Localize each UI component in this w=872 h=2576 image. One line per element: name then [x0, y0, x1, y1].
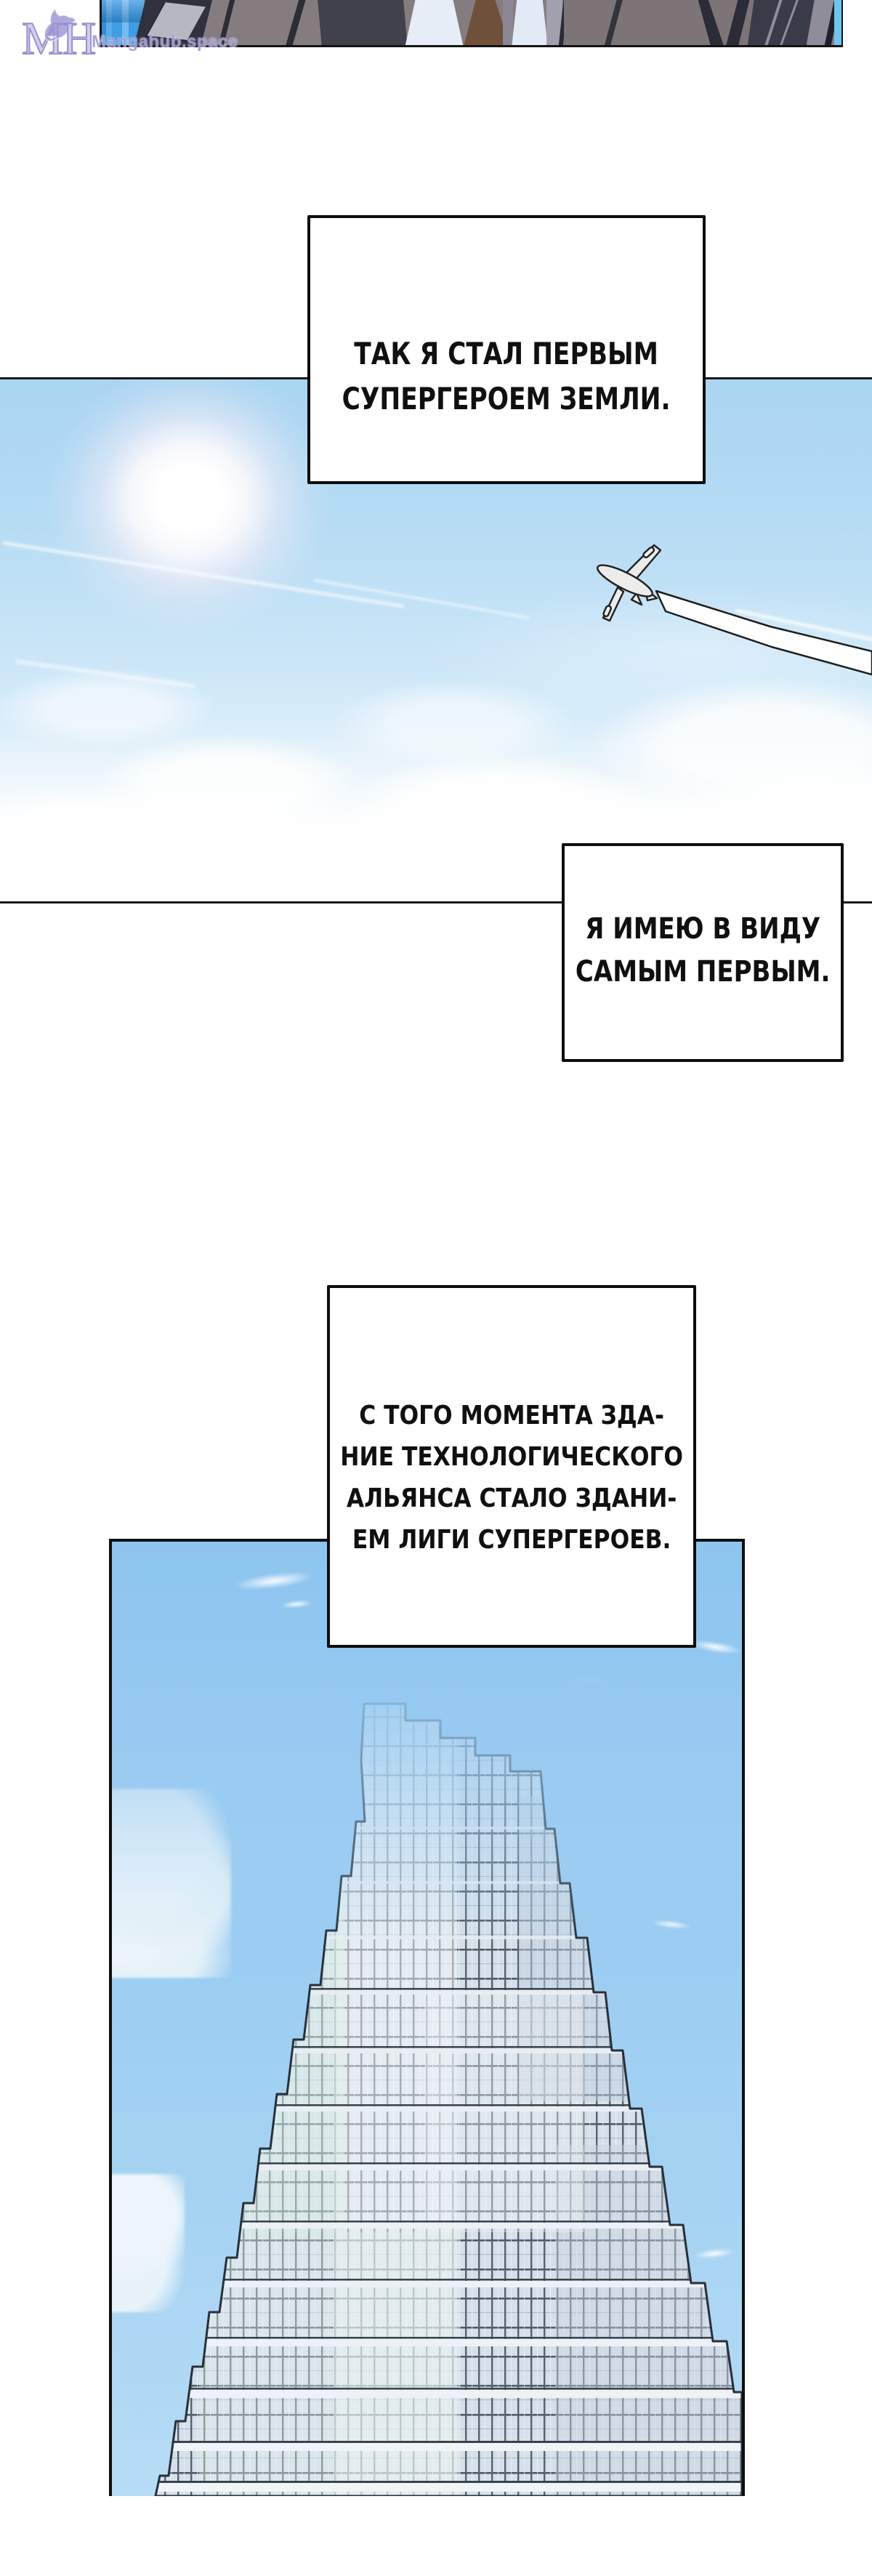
narration-text-2: Я ИМЕЮ В ВИДУ САМЫМ ПЕРВЫМ.: [576, 908, 830, 994]
narration-line: ТАК Я СТАЛ ПЕРВЫМ: [342, 331, 671, 377]
airplane-icon: [594, 545, 661, 621]
watermark-letter-m: M: [22, 12, 63, 65]
narration-line: СУПЕРГЕРОЕМ ЗЕМЛИ.: [342, 377, 671, 422]
shirt-shape-2: [511, 0, 549, 47]
panel-top-partial: [100, 0, 843, 47]
narration-box-2: Я ИМЕЮ В ВИДУ САМЫМ ПЕРВЫМ.: [562, 843, 844, 1062]
narration-line: Я ИМЕЮ В ВИДУ: [576, 908, 830, 951]
panel-skyscraper: [109, 1539, 745, 2499]
narration-line: АЛЬЯНСА СТАЛО ЗДАНИ-: [340, 1478, 683, 1519]
narration-line: НИЕ ТЕХНОЛОГИЧЕСКОГО: [340, 1436, 683, 1478]
narration-line: ЕМ ЛИГИ СУПЕРГЕРОЕВ.: [340, 1519, 683, 1561]
suit-seam-2: [283, 0, 307, 47]
shirt-shape-1: [403, 0, 465, 47]
skyscraper-art: [112, 1542, 742, 2496]
sky-sliver: [834, 0, 841, 47]
page-bottom-margin: [0, 2496, 872, 2576]
webtoon-page: M H Mangahub.space ТАК Я СТАЛ ПЕРВЫМ СУП…: [0, 0, 872, 2576]
contrail: [656, 591, 872, 675]
narration-text-3: С ТОГО МОМЕНТА ЗДА- НИЕ ТЕХНОЛОГИЧЕСКОГО…: [340, 1395, 683, 1561]
narration-box-1: ТАК Я СТАЛ ПЕРВЫМ СУПЕРГЕРОЕМ ЗЕМЛИ.: [307, 215, 706, 484]
fox-icon: [41, 4, 83, 47]
suit-shape-3: [503, 0, 513, 47]
narration-line: С ТОГО МОМЕНТА ЗДА-: [340, 1395, 683, 1436]
narration-box-3: С ТОГО МОМЕНТА ЗДА- НИЕ ТЕХНОЛОГИЧЕСКОГО…: [327, 1285, 696, 1648]
suit-shape-2: [317, 0, 408, 47]
narration-line: САМЫМ ПЕРВЫМ.: [576, 951, 830, 994]
suit-seam-1: [217, 0, 236, 47]
watermark-letter-h: H: [62, 12, 96, 65]
narration-text-1: ТАК Я СТАЛ ПЕРВЫМ СУПЕРГЕРОЕМ ЗЕМЛИ.: [342, 331, 671, 422]
